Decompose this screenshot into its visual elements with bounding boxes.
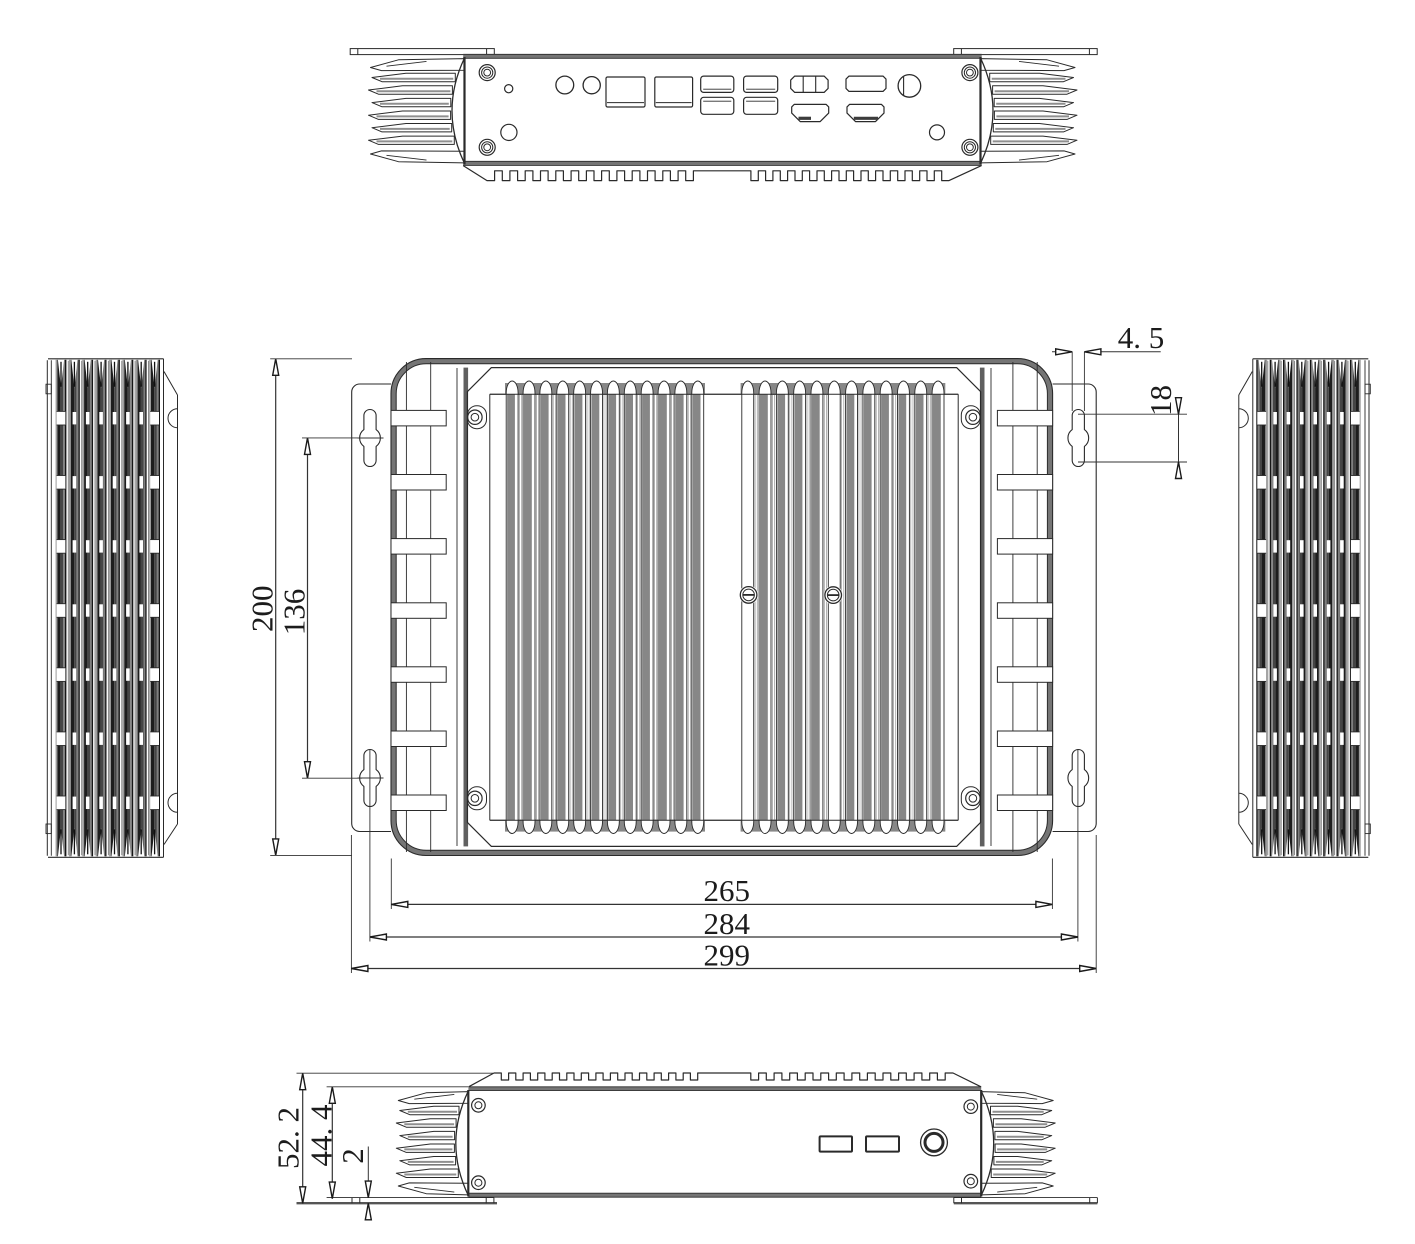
svg-text:200: 200 [245, 585, 280, 632]
svg-text:52. 2: 52. 2 [270, 1107, 305, 1169]
svg-text:299: 299 [704, 938, 751, 973]
svg-text:44. 4: 44. 4 [303, 1104, 338, 1167]
svg-text:4. 5: 4. 5 [1118, 320, 1165, 355]
svg-text:265: 265 [704, 873, 751, 908]
svg-text:136: 136 [276, 589, 311, 636]
svg-text:2: 2 [335, 1148, 370, 1164]
svg-text:284: 284 [704, 906, 751, 941]
svg-text:18: 18 [1143, 385, 1178, 416]
